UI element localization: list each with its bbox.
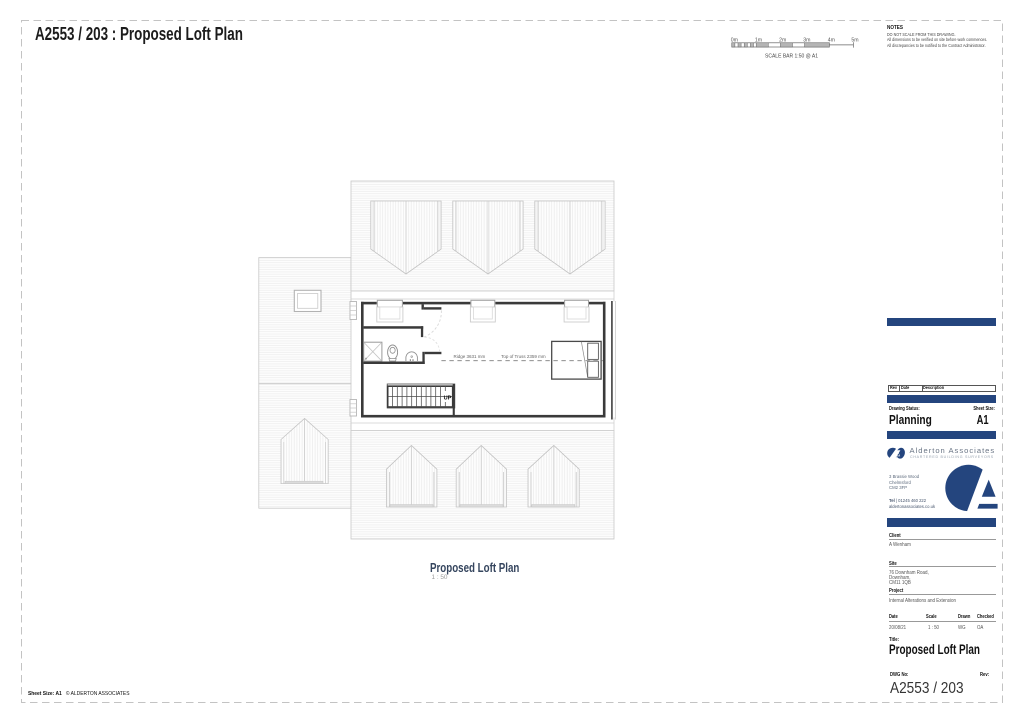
svg-text:UP: UP — [444, 396, 452, 402]
svg-text:Ridge 3631 mm: Ridge 3631 mm — [454, 354, 486, 359]
svg-text:Top of Truss 2359 mm: Top of Truss 2359 mm — [501, 354, 546, 359]
